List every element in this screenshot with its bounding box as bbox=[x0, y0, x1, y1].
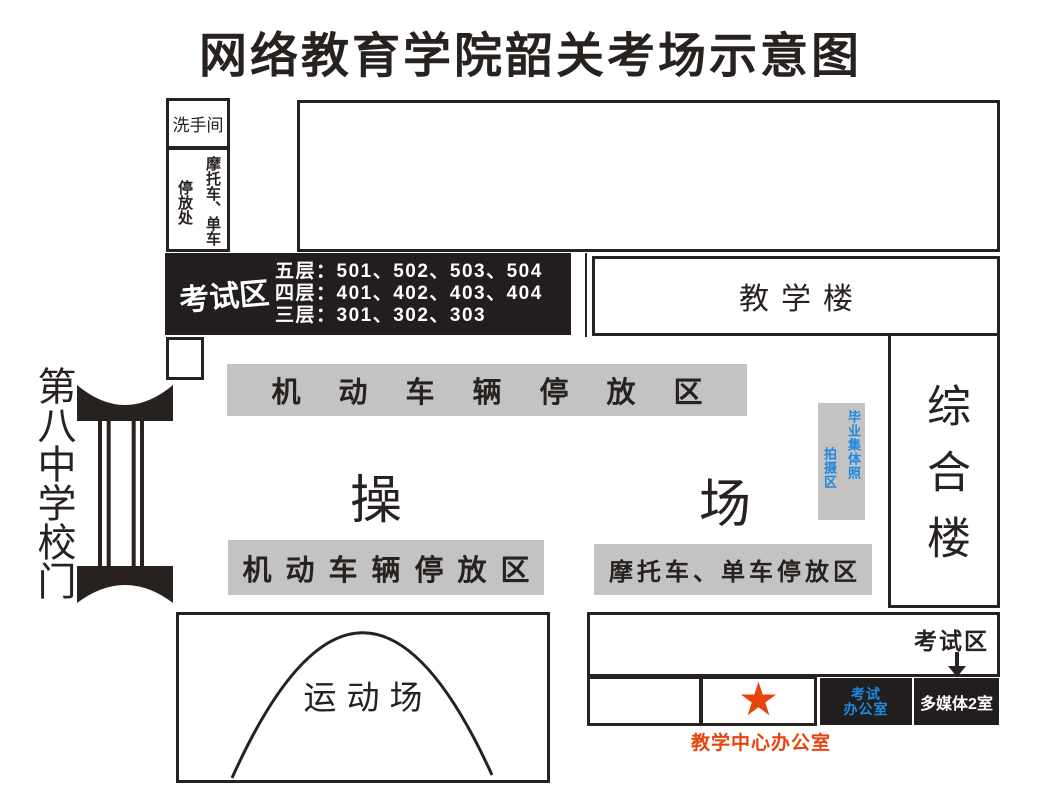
sports-field-label: 运动场 bbox=[179, 671, 547, 719]
complex-building-label: 综合楼 bbox=[912, 361, 976, 581]
restroom-label: 洗手间 bbox=[173, 111, 224, 136]
down-arrow-icon bbox=[947, 652, 967, 678]
restroom-box: 洗手间 bbox=[166, 98, 230, 149]
lower-parking-left-strip: 机动车辆停放区 bbox=[228, 540, 544, 595]
exam-office-box: 考试 办公室 bbox=[820, 678, 912, 725]
complex-building-box: 综合楼 bbox=[888, 333, 1000, 608]
upper-parking-strip: 机动车辆停放区 bbox=[227, 364, 747, 416]
exam-floor-list: 五层：501、502、503、504 四层：401、402、403、404 三层… bbox=[275, 261, 543, 327]
bike-shed-box: 摩托车、单车 停放处 bbox=[166, 147, 230, 252]
corridor-line bbox=[585, 253, 587, 337]
page-title: 网络教育学院韶关考场示意图 bbox=[0, 16, 1061, 86]
exam-area-block: 考试区 五层：501、502、503、504 四层：401、402、403、40… bbox=[165, 253, 571, 335]
bottom-right-building: 考试区 bbox=[587, 612, 1000, 677]
lower-parking-right-strip: 摩托车、单车停放区 bbox=[594, 544, 872, 595]
playground-char-right: 场 bbox=[699, 462, 751, 537]
sports-field-box: 运动场 bbox=[176, 612, 550, 783]
floor-line-5: 五层：501、502、503、504 bbox=[275, 261, 543, 283]
exam-area-label: 考试区 bbox=[175, 268, 272, 320]
teaching-building-label: 教学楼 bbox=[739, 274, 865, 318]
exam-office-label-line1: 考试 bbox=[851, 687, 881, 702]
multimedia-room-box: 多媒体2室 bbox=[914, 678, 999, 725]
teaching-center-office-caption: 教学中心办公室 bbox=[681, 728, 841, 755]
photo-area-box: 毕业集体照 拍摄区 bbox=[818, 403, 865, 520]
lower-parking-left-label: 机动车辆停放区 bbox=[242, 547, 543, 589]
floor-line-4: 四层：401、402、403、404 bbox=[275, 283, 543, 305]
teaching-building-box: 教学楼 bbox=[592, 256, 1000, 336]
bike-shed-label-left: 停放处 bbox=[177, 180, 192, 225]
exam-area-pointer-label: 考试区 bbox=[914, 622, 989, 656]
playground-char-left: 操 bbox=[350, 458, 402, 533]
upper-parking-label: 机动车辆停放区 bbox=[271, 369, 740, 411]
star-icon: ★ bbox=[738, 676, 779, 722]
bike-shed-label-right: 摩托车、单车 bbox=[205, 156, 220, 246]
school-gate-label: 第八中学校门 bbox=[34, 366, 73, 606]
photo-area-label-right: 毕业集体照 bbox=[847, 410, 860, 480]
teaching-center-office-box: ★ bbox=[700, 676, 817, 726]
bottom-row-empty-box bbox=[587, 676, 702, 726]
exam-venue-map: 网络教育学院韶关考场示意图 洗手间 摩托车、单车 停放处 考试区 五层：501、… bbox=[0, 0, 1061, 801]
small-annex-box bbox=[166, 337, 204, 380]
top-building bbox=[297, 100, 1000, 252]
multimedia-room-label: 多媒体2室 bbox=[920, 690, 993, 714]
lower-parking-right-label: 摩托车、单车停放区 bbox=[609, 552, 861, 587]
floor-line-3: 三层：301、302、303 bbox=[275, 305, 543, 327]
photo-area-label-left: 拍摄区 bbox=[823, 447, 836, 489]
school-gate-icon bbox=[75, 383, 175, 605]
exam-office-label-line2: 办公室 bbox=[844, 702, 889, 717]
